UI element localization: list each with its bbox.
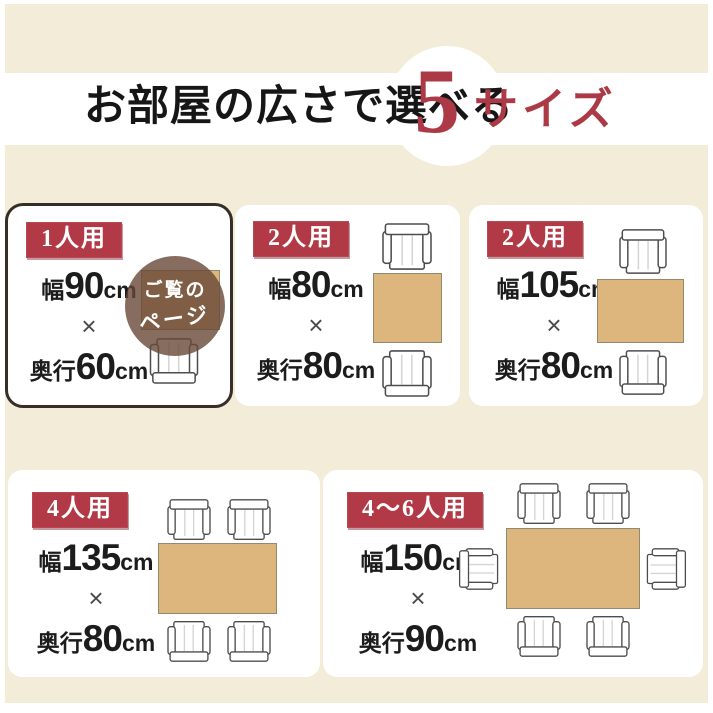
chair-icon — [517, 483, 561, 525]
size-card-2-person-80: 2人用 幅80cm × 奥行80cm — [235, 205, 460, 406]
size-card-1-person: 1人用 幅90cm × 奥行60cm ご覧の ページ — [5, 203, 233, 408]
depth-unit: cm — [122, 630, 155, 656]
size-count: 5 — [414, 55, 460, 147]
current-page-overlay: ご覧の ページ — [125, 256, 225, 356]
width-label: 幅 — [497, 276, 520, 302]
overlay-text-line2: ページ — [138, 302, 212, 337]
chair-icon — [619, 349, 667, 395]
depth-label: 奥行 — [37, 630, 83, 656]
width-dimension: 幅80cm — [237, 261, 395, 309]
width-label: 幅 — [41, 277, 64, 303]
depth-dimension: 奥行80cm — [471, 342, 637, 390]
size-card-4-6-person: 4〜6人用 幅150cm × 奥行90cm — [323, 470, 703, 677]
depth-value: 80 — [541, 345, 580, 386]
width-value: 90 — [64, 265, 103, 306]
chair-icon — [586, 615, 630, 657]
chair-icon — [227, 620, 271, 662]
multiplication-sign: × — [237, 310, 395, 341]
table-top-illustration — [373, 273, 442, 343]
width-value: 80 — [291, 264, 330, 305]
depth-value: 90 — [405, 618, 444, 659]
chair-icon — [586, 483, 630, 525]
chair-icon — [517, 615, 561, 657]
depth-dimension: 奥行80cm — [14, 615, 178, 663]
size-card-4-person: 4人用 幅135cm × 奥行80cm — [8, 470, 320, 677]
depth-dimension: 奥行90cm — [333, 615, 503, 663]
depth-dimension: 奥行80cm — [237, 342, 395, 390]
chair-icon — [382, 349, 432, 397]
dimensions-text: 幅135cm × 奥行80cm — [14, 534, 178, 663]
depth-value: 80 — [303, 345, 342, 386]
depth-value: 60 — [76, 346, 115, 387]
capacity-badge: 2人用 — [487, 221, 583, 257]
chair-icon — [167, 499, 211, 541]
chair-icon — [619, 229, 667, 275]
depth-unit: cm — [115, 358, 148, 384]
size-count-suffix: サイズ — [474, 88, 617, 132]
depth-unit: cm — [342, 357, 375, 383]
width-label: 幅 — [361, 549, 384, 575]
chair-icon — [645, 548, 687, 590]
capacity-badge: 2人用 — [253, 221, 349, 257]
depth-unit: cm — [580, 357, 613, 383]
table-top-illustration — [597, 279, 684, 343]
chair-icon — [167, 620, 211, 662]
depth-value: 80 — [83, 618, 122, 659]
width-value: 135 — [62, 537, 121, 578]
depth-label: 奥行 — [30, 358, 76, 384]
dimensions-text: 幅80cm × 奥行80cm — [237, 261, 395, 390]
table-top-illustration — [158, 543, 277, 614]
table-top-illustration — [506, 528, 640, 609]
width-dimension: 幅135cm — [14, 534, 178, 582]
width-value: 105 — [520, 264, 579, 305]
size-infographic: お部屋の広さで選べる 5 サイズ 1人用 幅90cm × 奥行60cm ご覧の … — [0, 0, 713, 713]
chair-icon — [227, 499, 271, 541]
capacity-badge: 4〜6人用 — [347, 492, 483, 528]
width-label: 幅 — [268, 276, 291, 302]
depth-unit: cm — [444, 630, 477, 656]
chair-icon — [382, 223, 432, 271]
chair-icon — [458, 548, 500, 590]
depth-label: 奥行 — [495, 357, 541, 383]
depth-dimension: 奥行60cm — [10, 343, 168, 391]
width-unit: cm — [120, 549, 153, 575]
depth-label: 奥行 — [359, 630, 405, 656]
size-card-2-person-105: 2人用 幅105cm × 奥行80cm — [469, 205, 703, 406]
capacity-badge: 1人用 — [26, 222, 122, 258]
width-label: 幅 — [39, 549, 62, 575]
overlay-text-line1: ご覧の — [143, 280, 206, 303]
depth-label: 奥行 — [257, 357, 303, 383]
capacity-badge: 4人用 — [32, 492, 128, 528]
width-unit: cm — [330, 276, 363, 302]
width-value: 150 — [384, 537, 443, 578]
multiplication-sign: × — [14, 583, 178, 614]
